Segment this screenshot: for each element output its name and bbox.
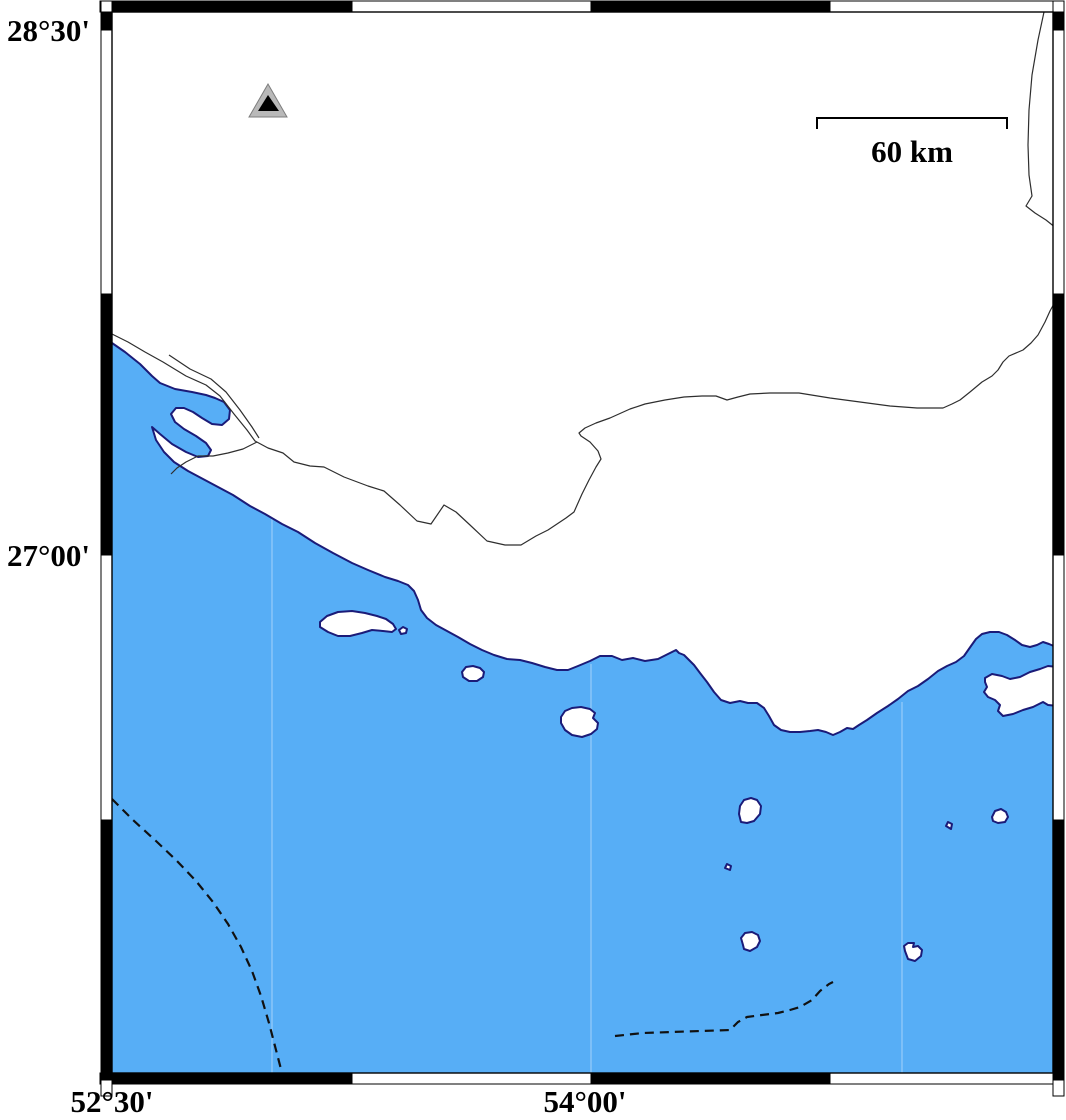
lat-label-27-00: 27°00' bbox=[7, 538, 90, 573]
frame-right-cell-2 bbox=[1053, 30, 1064, 294]
frame-left-cell-0 bbox=[101, 1, 112, 12]
frame-top-cell-1 bbox=[112, 1, 352, 12]
frame-right-cell-5 bbox=[1053, 820, 1064, 1080]
frame-right-cell-6 bbox=[1053, 1080, 1064, 1096]
frame-right-cell-3 bbox=[1053, 294, 1064, 555]
frame-right-cell-0 bbox=[1053, 1, 1064, 12]
lon-label-52-30: 52°30' bbox=[70, 1084, 153, 1115]
frame-left-cell-3 bbox=[101, 294, 112, 555]
islet-tiny-1 bbox=[399, 627, 407, 634]
frame-right-cell-1 bbox=[1053, 12, 1064, 30]
frame-left-cell-5 bbox=[101, 820, 112, 1080]
frame-right-cell-4 bbox=[1053, 555, 1064, 820]
frame-bottom-cell-1 bbox=[112, 1073, 352, 1084]
frame-left-cell-1 bbox=[101, 12, 112, 30]
frame-top-cell-2 bbox=[352, 1, 591, 12]
map-canvas: 60 km 28°30' 27°00' 52°30' 54°00' bbox=[0, 0, 1066, 1115]
island-small-2 bbox=[992, 809, 1008, 823]
lat-label-28-30: 28°30' bbox=[7, 13, 90, 48]
frame-top-cell-3 bbox=[591, 1, 830, 12]
islet-tiny-2 bbox=[725, 864, 731, 870]
map-svg: 60 km 28°30' 27°00' 52°30' 54°00' bbox=[0, 0, 1066, 1115]
frame-bottom-cell-2 bbox=[352, 1073, 591, 1084]
scale-bar-label: 60 km bbox=[871, 134, 953, 169]
frame-bottom-cell-4 bbox=[830, 1073, 1053, 1084]
island-small-1 bbox=[462, 666, 484, 681]
lon-label-54-00: 54°00' bbox=[543, 1084, 626, 1115]
frame-bottom-cell-3 bbox=[591, 1073, 830, 1084]
frame-left-cell-2 bbox=[101, 30, 112, 294]
frame-top-cell-4 bbox=[830, 1, 1053, 12]
frame-left-cell-4 bbox=[101, 555, 112, 820]
